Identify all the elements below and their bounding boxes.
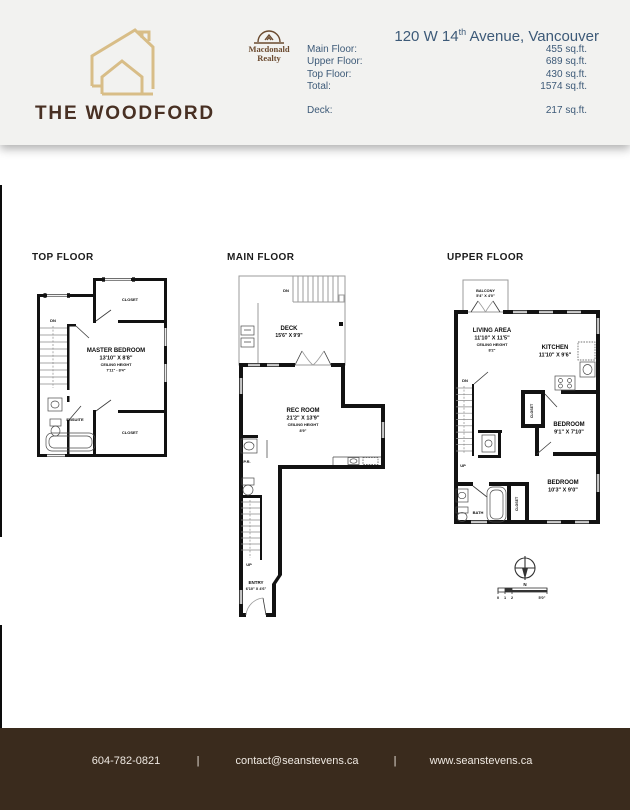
closet1-label: CLOSET [530,403,534,418]
bedroom2-dims: 10'3" X 9'0" [548,488,578,494]
master-bedroom-label: MASTER BEDROOM [87,348,145,354]
main-floor-stairs [241,500,260,558]
stat-label: Total: [307,81,331,93]
french-door [295,351,331,365]
stairs-up-label: UP [460,463,466,468]
bedroom2-label: BEDROOM [547,480,578,486]
deck-post [339,322,343,326]
upper-floor-stairs [456,386,472,454]
pr-sink [241,439,257,453]
scale-tick-2: 2 [511,596,513,600]
top-floor-title: TOP FLOOR [32,252,94,263]
footer: 604-782-0821 | contact@seanstevens.ca | … [0,728,630,810]
macdonald-realty-logo: Macdonald Realty [240,28,298,62]
ceiling-height-label: CEILING HEIGHT [477,343,508,347]
bath-label: BATH [473,510,484,515]
pr-toilet [242,478,254,485]
footer-website: www.seanstevens.ca [430,755,533,767]
kitchen-label: KITCHEN [542,345,569,351]
kitchenette-counter [333,457,381,465]
logo-inner-house [92,61,153,94]
kitchen-dims: 11'10" X 9'6" [539,353,572,359]
master-bedroom-dims: 13'10" X 8'8" [100,356,133,362]
living-area-dims: 11'10" X 11'5" [474,336,510,342]
ceiling-height-label: CEILING HEIGHT [288,423,319,427]
top-floor-fixtures [46,398,95,451]
ensuite-label: ENSUITE [66,417,84,422]
stat-label: Upper Floor: [307,56,363,68]
compass-rose-icon [515,556,535,580]
stat-row-upper-floor: Upper Floor: 689 sq.ft. [307,56,587,68]
rec-room-dims: 21'2" X 13'9" [287,416,320,422]
main-floor-windows [240,364,384,604]
balcony-label: BALCONY [476,289,495,293]
stat-row-deck: Deck: 217 sq.ft. [307,105,587,117]
compass-north-label: N [523,582,526,587]
rec-room-label: REC ROOM [287,408,320,414]
top-floor-stairs [40,326,67,388]
footer-separator: | [394,755,397,767]
top-floor-walls [37,277,167,457]
area-stats: Main Floor: 455 sq.ft. Upper Floor: 689 … [307,44,587,117]
closet-top-label: CLOSET [122,297,139,302]
scale-end-label: 5'0" [539,596,546,600]
stat-value: 689 sq.ft. [546,56,587,68]
stat-row-top-floor: Top Floor: 430 sq.ft. [307,69,587,81]
main-floor-plan: DN DECK 15'6" X 9'9" REC ROOM 21'2" X 13… [236,272,388,618]
stat-label: Deck: [307,105,333,117]
laundry-closet [482,435,495,452]
ensuite-vanity [48,398,62,411]
powder-room-label: P.R. [243,459,250,464]
upper-floor-title: UPPER FLOOR [447,252,524,263]
deck-dn-label: DN [283,288,289,293]
stat-label: Top Floor: [307,69,351,81]
stove [555,376,575,390]
stairs-dn-label: DN [462,378,468,383]
deck-dims: 15'6" X 9'9" [275,333,303,339]
page-edge-artifact [0,185,2,537]
entry-door [246,598,266,615]
ensuite-toilet [50,419,61,426]
stat-value: 1574 sq.ft. [540,81,587,93]
address-prefix: 120 W 14 [394,28,458,45]
entry-dims: 6'10" X 4'6" [246,587,267,591]
deck-bbq [241,326,254,347]
macdonald-realty-arch-icon [252,28,286,44]
entry-label: ENTRY [248,580,263,585]
closet2-label: CLOSET [515,496,519,511]
woodford-house-logo-icon [89,26,155,98]
stat-value: 430 sq.ft. [546,69,587,81]
balcony-doors [471,301,500,312]
washer-dryer [482,435,495,452]
compass-and-scale: N 0 1 2 5'0" [492,553,562,603]
stat-label: Main Floor: [307,44,357,56]
footer-phone: 604-782-0821 [92,755,161,767]
footer-separator: | [197,755,200,767]
bedroom1-dims: 9'1" X 7'10" [554,430,584,436]
deck-label: DECK [280,326,298,332]
top-floor-windows [47,278,167,456]
powder-room-fixtures [241,439,267,495]
scale-tick-0: 0 [497,596,499,600]
brand-title: THE WOODFORD [25,103,225,125]
main-floor-title: MAIN FLOOR [227,252,294,263]
bedroom1-label: BEDROOM [553,422,584,428]
stat-row-main-floor: Main Floor: 455 sq.ft. [307,44,587,56]
ceiling-height-label: CEILING HEIGHT [101,363,132,367]
ceiling-height-value: 7'11" - 8'4" [106,369,125,373]
ceiling-height-value: 8'2" [489,349,496,353]
flyer-page: THE WOODFORD Macdonald Realty 120 W 14th… [0,0,630,810]
deck-outline [239,276,345,365]
ceiling-height-value: 8'9" [300,429,307,433]
fridge [578,342,595,360]
scale-tick-1: 1 [504,596,506,600]
macdonald-realty-name-line2: Realty [240,54,298,63]
living-area-label: LIVING AREA [473,328,512,334]
stat-value: 455 sq.ft. [546,44,587,56]
stat-value: 217 sq.ft. [546,105,587,117]
upper-floor-plan: BALCONY 5'4" X 4'0" LIVING AREA 11'10" X… [451,276,603,528]
footer-email: contact@seanstevens.ca [235,755,358,767]
balcony-dims: 5'4" X 4'0" [476,294,495,298]
stairs-dn-label: DN [50,318,56,323]
property-address: 120 W 14th Avenue, Vancouver [394,27,599,45]
top-floor-plan: CLOSET DN MASTER BEDROOM 13'10" X 8'8" C… [33,270,173,460]
address-suffix: Avenue, Vancouver [466,28,599,45]
stairs-up-label: UP [246,562,252,567]
scale-bar [498,588,547,594]
address-superscript: th [459,27,467,37]
header: THE WOODFORD Macdonald Realty 120 W 14th… [0,0,630,145]
dishwasher [363,458,378,465]
main-floor-walls [239,363,385,617]
closet-bottom-label: CLOSET [122,430,139,435]
stat-row-total: Total: 1574 sq.ft. [307,81,587,93]
page-edge-artifact [0,625,2,728]
